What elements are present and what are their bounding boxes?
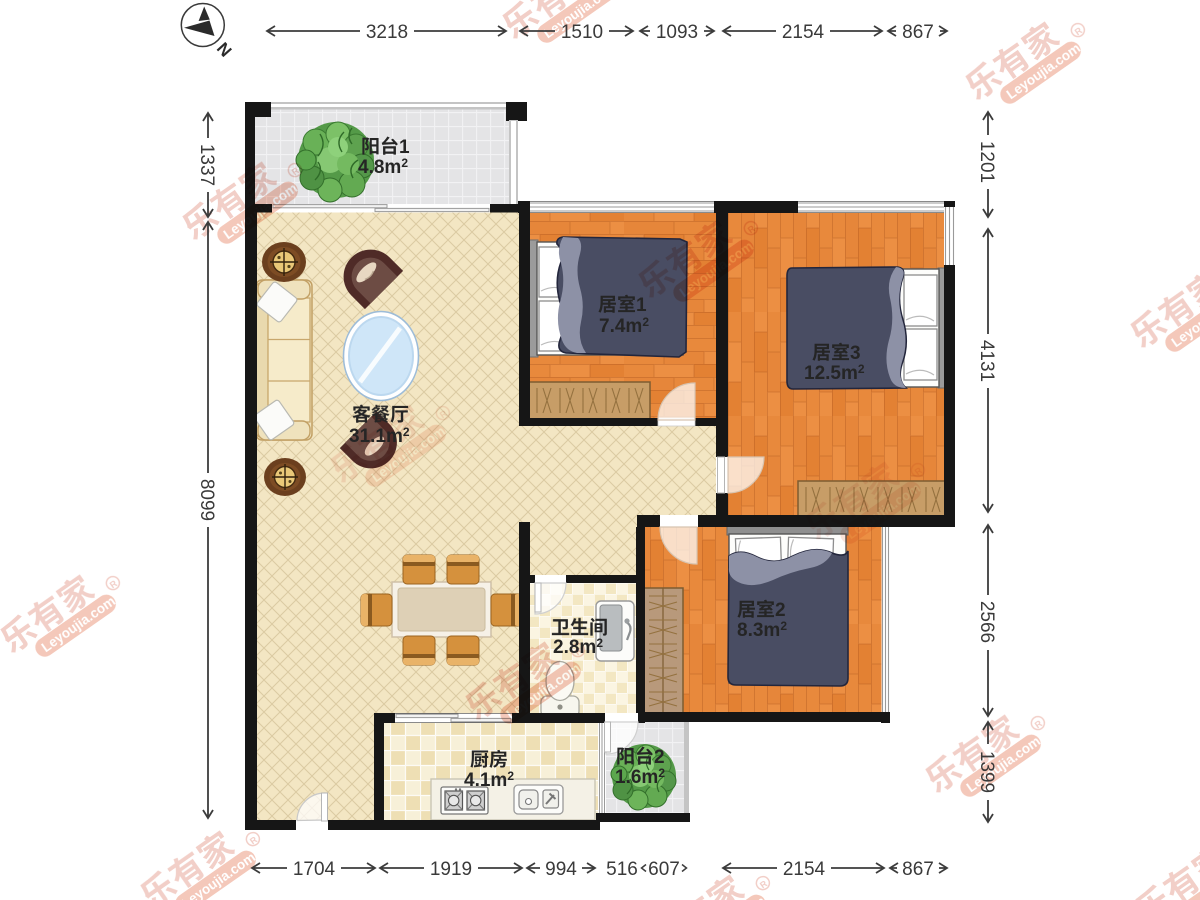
svg-text:867: 867 [902,22,934,43]
svg-text:31.1m2: 31.1m2 [349,425,410,447]
svg-text:4.1m2: 4.1m2 [464,769,514,791]
svg-text:516: 516 [606,859,638,880]
svg-text:2566: 2566 [976,601,997,643]
svg-text:3: 3 [850,343,861,364]
svg-text:2.8m2: 2.8m2 [553,636,603,658]
svg-text:2: 2 [654,747,665,768]
svg-text:2154: 2154 [782,22,825,43]
svg-text:2: 2 [775,600,786,621]
svg-text:1093: 1093 [656,22,698,43]
svg-text:4131: 4131 [976,340,997,382]
svg-text:1704: 1704 [293,859,336,880]
svg-text:1.6m2: 1.6m2 [615,766,665,788]
svg-text:4.8m2: 4.8m2 [358,156,408,178]
svg-text:7.4m2: 7.4m2 [599,315,649,337]
svg-text:1: 1 [399,137,410,158]
svg-text:1919: 1919 [430,859,472,880]
svg-text:867: 867 [902,859,934,880]
svg-text:3218: 3218 [366,22,408,43]
svg-text:1337: 1337 [196,144,217,186]
svg-text:12.5m2: 12.5m2 [804,362,865,384]
svg-text:2154: 2154 [783,859,826,880]
svg-text:1201: 1201 [976,141,997,183]
svg-text:994: 994 [545,859,577,880]
svg-text:1510: 1510 [561,22,603,43]
svg-text:8099: 8099 [196,479,217,521]
svg-text:8.3m2: 8.3m2 [737,619,787,641]
svg-text:1399: 1399 [976,751,997,793]
svg-text:1: 1 [636,295,647,316]
svg-text:607: 607 [648,859,680,880]
